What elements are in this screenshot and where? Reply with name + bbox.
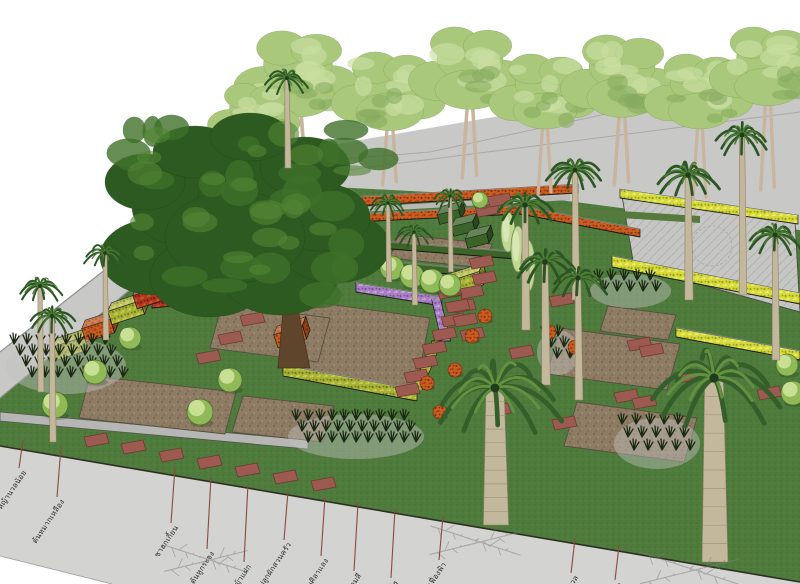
shrub-ball (119, 327, 142, 351)
shrub-ball (187, 399, 214, 427)
spiky-plants (288, 409, 424, 459)
garden-render: หญ้านวลน้อยต้นหมากเหลืองชาฮกเกี้ยนต้นหูก… (0, 0, 800, 584)
shrub-ball (83, 360, 108, 386)
shrub-ball (439, 274, 462, 298)
shrub-ball (218, 368, 243, 394)
garden-render-canvas (0, 0, 800, 584)
